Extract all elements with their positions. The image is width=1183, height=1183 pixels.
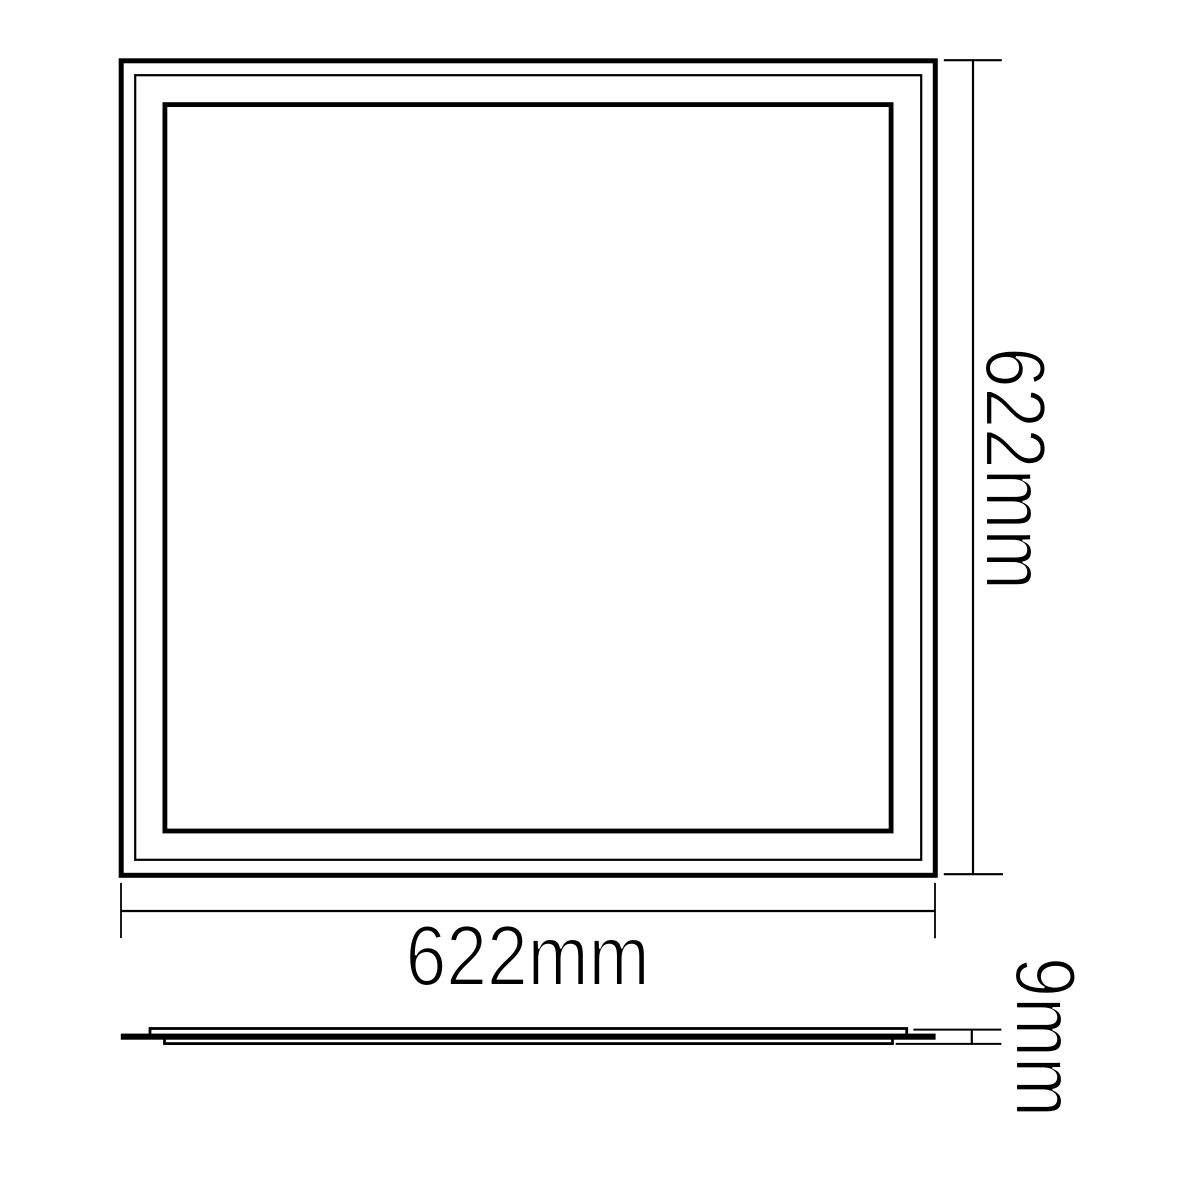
svg-text:9mm: 9mm bbox=[997, 957, 1092, 1117]
svg-text:622mm: 622mm bbox=[406, 909, 650, 1004]
svg-text:622mm: 622mm bbox=[967, 347, 1062, 590]
